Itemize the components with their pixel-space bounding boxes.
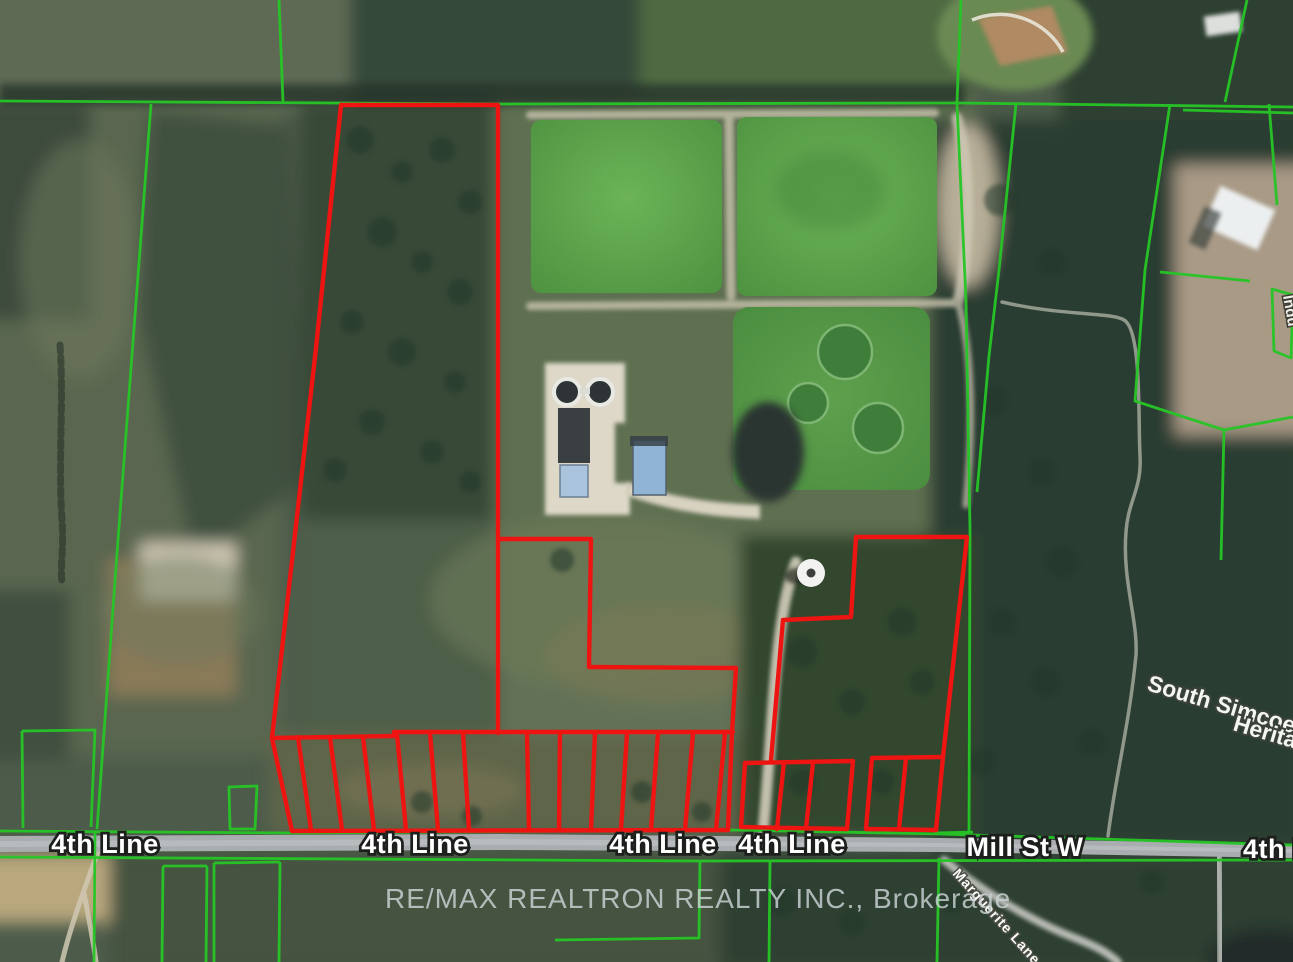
aerial-parcel-map: 4th Line 4th Line 4th Line 4th Line Mill… xyxy=(0,0,1293,962)
brokerage-watermark: RE/MAX REALTRON REALTY INC., Brokerage xyxy=(385,883,1011,914)
satellite-canvas: 4th Line 4th Line 4th Line 4th Line Mill… xyxy=(0,0,1293,962)
road-label-4th-line-2: 4th Line xyxy=(361,829,469,859)
wet-pond xyxy=(732,402,804,502)
blue-building-west xyxy=(560,465,588,497)
process-building xyxy=(558,408,590,463)
lagoon-pond-west xyxy=(531,120,722,293)
blue-building-east xyxy=(633,440,666,495)
road-label-4th-line-1: 4th Line xyxy=(51,829,159,859)
road-label-4th-line-partial: 4th Line xyxy=(1243,834,1293,864)
road-label-4th-line-3: 4th Line xyxy=(609,829,717,859)
illegible-vertical-marking xyxy=(60,345,63,582)
road-label-mill-st-w: Mill St W xyxy=(967,832,1084,862)
road-label-4th-line-4: 4th Line xyxy=(738,829,846,859)
